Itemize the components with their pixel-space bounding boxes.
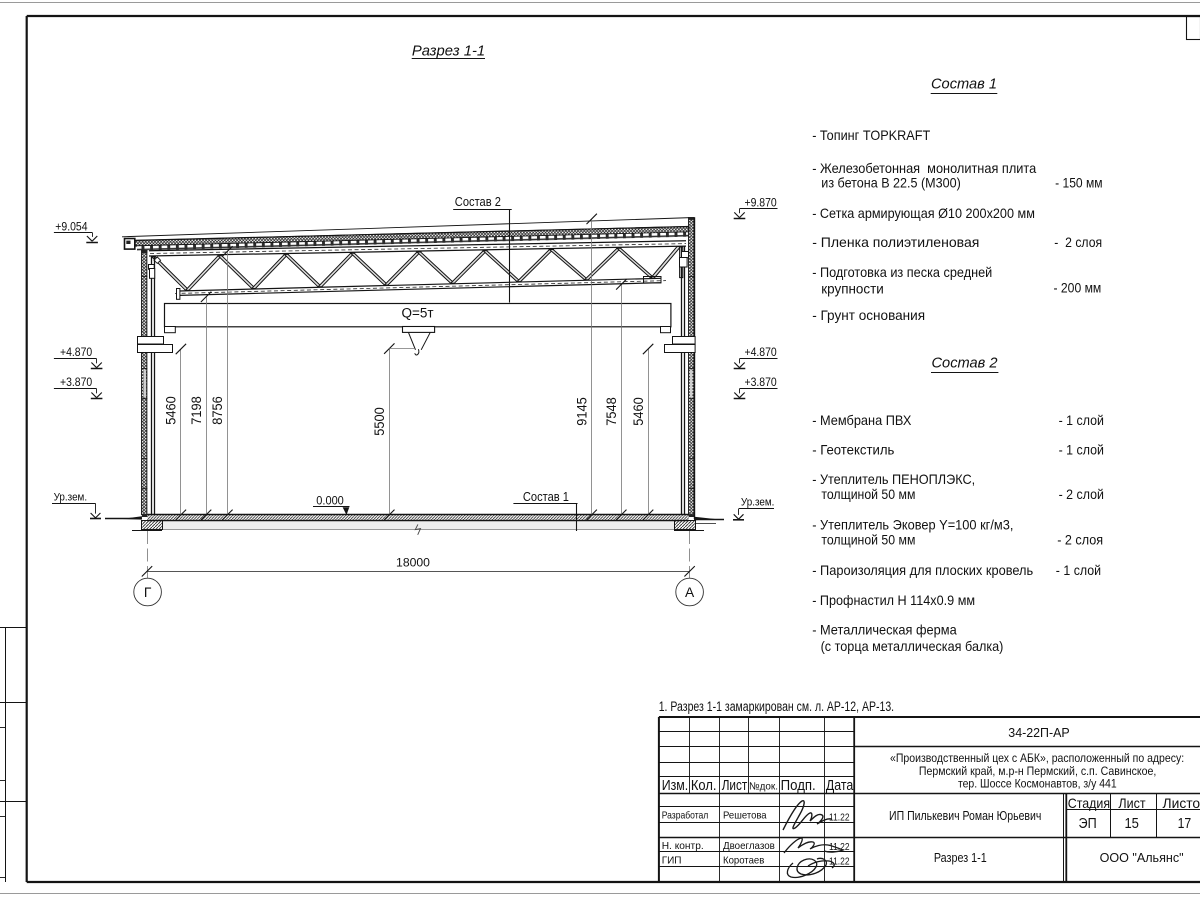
svg-text:Изм.: Изм.	[662, 778, 689, 794]
svg-text:+9.870: +9.870	[745, 196, 778, 209]
svg-text:- Подготовка из песка средней: - Подготовка из песка средней	[812, 264, 992, 280]
svg-text:Кол.: Кол.	[691, 778, 717, 794]
svg-text:Ур.зем.: Ур.зем.	[54, 492, 88, 504]
svg-text:Разрез 1-1: Разрез 1-1	[412, 43, 485, 60]
svg-text:5500: 5500	[372, 407, 387, 436]
svg-text:из бетона В 22.5 (М300): из бетона В 22.5 (М300)	[821, 175, 961, 191]
svg-text:- 2 слой: - 2 слой	[1059, 486, 1104, 502]
svg-text:Разработал: Разработал	[662, 809, 709, 821]
svg-text:- Грунт основания: - Грунт основания	[812, 307, 925, 323]
svg-text:Лист: Лист	[1118, 795, 1146, 811]
svg-text:- 2 слоя: - 2 слоя	[1054, 234, 1102, 250]
svg-text:- 150 мм: - 150 мм	[1055, 175, 1103, 191]
svg-text:А: А	[685, 585, 695, 600]
svg-text:Н. контр.: Н. контр.	[662, 841, 704, 852]
svg-text:Дата: Дата	[826, 778, 853, 794]
svg-text:Решетова: Решетова	[723, 810, 767, 821]
svg-text:18000: 18000	[396, 556, 430, 570]
svg-text:Ур.зем.: Ур.зем.	[741, 496, 775, 508]
svg-text:- Железобетонная монолитная п: - Железобетонная монолитная плита	[812, 160, 1036, 176]
svg-text:Q=5т: Q=5т	[401, 306, 433, 321]
svg-text:11.22: 11.22	[829, 811, 850, 823]
svg-text:Состав 1: Состав 1	[523, 489, 569, 504]
svg-text:7198: 7198	[189, 396, 204, 425]
svg-text:ЭП: ЭП	[1079, 816, 1097, 832]
svg-text:- Геотекстиль: - Геотекстиль	[812, 442, 894, 458]
svg-text:- Топинг TOPKRAFT: - Топинг TOPKRAFT	[812, 127, 930, 143]
svg-text:толщиной 50 мм: толщиной 50 мм	[821, 531, 915, 547]
svg-text:34-22П-АР: 34-22П-АР	[1008, 725, 1069, 740]
svg-text:Стадия: Стадия	[1068, 795, 1110, 811]
svg-text:крупности: крупности	[821, 281, 884, 297]
svg-text:толщиной 50 мм: толщиной 50 мм	[821, 486, 915, 502]
svg-text:Г: Г	[144, 585, 152, 600]
svg-text:- Пленка полиэтиленовая: - Пленка полиэтиленовая	[812, 234, 979, 250]
svg-text:Разрез 1-1: Разрез 1-1	[934, 851, 987, 865]
svg-text:15: 15	[1124, 816, 1139, 832]
svg-text:5460: 5460	[164, 396, 179, 425]
svg-text:+4.870: +4.870	[60, 346, 93, 359]
svg-text:- Сетка армирующая Ø10 200х200: - Сетка армирующая Ø10 200х200 мм	[812, 205, 1035, 221]
svg-text:- Утеплитель ПЕНОПЛЭКС,: - Утеплитель ПЕНОПЛЭКС,	[812, 471, 975, 487]
svg-text:Состав 2: Состав 2	[932, 356, 998, 372]
svg-text:- Металлическая ферма: - Металлическая ферма	[812, 622, 957, 638]
svg-text:Состав 1: Состав 1	[931, 77, 997, 93]
svg-text:- Утеплитель Эковер Y=100 кг/м: - Утеплитель Эковер Y=100 кг/м3,	[812, 517, 1013, 533]
svg-text:ГИП: ГИП	[662, 855, 682, 866]
svg-text:17: 17	[1178, 816, 1192, 832]
svg-text:Коротаев: Коротаев	[723, 855, 765, 866]
svg-text:Листов: Листов	[1163, 795, 1200, 811]
svg-text:Лист: Лист	[722, 778, 748, 794]
svg-text:Двоеглазов: Двоеглазов	[723, 841, 775, 852]
svg-text:- Мембрана ПВХ: - Мембрана ПВХ	[812, 412, 912, 428]
svg-text:ИП Пилькевич Роман Юрьевич: ИП Пилькевич Роман Юрьевич	[889, 809, 1041, 823]
svg-text:- 200 мм: - 200 мм	[1054, 280, 1102, 296]
svg-text:8756: 8756	[210, 396, 225, 425]
svg-text:9145: 9145	[574, 397, 589, 426]
svg-text:+9.054: +9.054	[55, 220, 88, 233]
svg-text:1. Разрез 1-1 замаркирован см.: 1. Разрез 1-1 замаркирован см. л. АР-12,…	[659, 699, 894, 714]
svg-text:№док.: №док.	[749, 781, 778, 793]
svg-text:+4.870: +4.870	[745, 346, 778, 359]
svg-text:Подп.: Подп.	[781, 778, 816, 794]
svg-text:Пермский край, м.р-н Пермский,: Пермский край, м.р-н Пермский, с.п. Сави…	[919, 764, 1157, 778]
svg-text:- Пароизоляция для плоских кро: - Пароизоляция для плоских кровель	[812, 562, 1033, 578]
svg-text:+3.870: +3.870	[745, 376, 778, 389]
svg-text:ООО "Альянс": ООО "Альянс"	[1100, 850, 1184, 865]
svg-text:(с торца металлическая балка): (с торца металлическая балка)	[821, 638, 1004, 654]
svg-text:- 2 слоя: - 2 слоя	[1057, 531, 1103, 547]
svg-text:5460: 5460	[631, 397, 646, 426]
svg-text:тер. Шоссе Космонавтов, з/у 44: тер. Шоссе Космонавтов, з/у 441	[958, 777, 1117, 791]
svg-text:- Профнастил Н 114х0.9 мм: - Профнастил Н 114х0.9 мм	[812, 592, 975, 608]
svg-text:- 1 слой: - 1 слой	[1056, 562, 1101, 578]
svg-text:«Производственный цех с АБК»,: «Производственный цех с АБК», расположен…	[890, 751, 1184, 765]
svg-text:- 1 слой: - 1 слой	[1059, 442, 1104, 458]
svg-text:0.000: 0.000	[316, 493, 344, 507]
svg-text:- 1 слой: - 1 слой	[1059, 412, 1104, 428]
svg-text:Состав 2: Состав 2	[455, 194, 501, 209]
svg-text:7548: 7548	[604, 397, 619, 426]
svg-text:+3.870: +3.870	[60, 376, 93, 389]
